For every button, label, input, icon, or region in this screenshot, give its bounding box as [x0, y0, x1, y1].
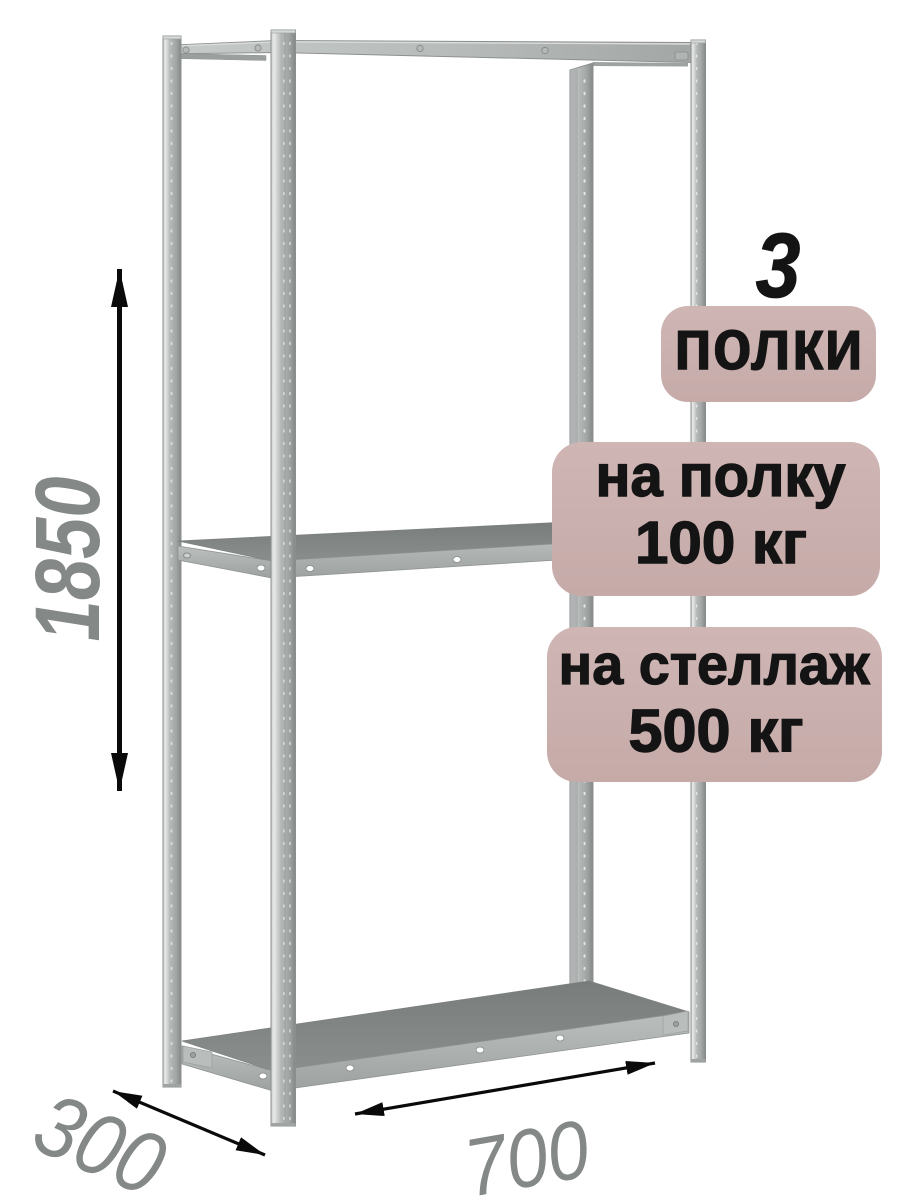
svg-text:на стеллаж: на стеллаж: [559, 633, 871, 697]
svg-text:500 кг: 500 кг: [629, 697, 804, 765]
svg-text:на полку: на полку: [596, 442, 846, 509]
svg-text:300: 300: [21, 1073, 179, 1200]
svg-text:3: 3: [756, 215, 801, 317]
svg-text:100 кг: 100 кг: [635, 509, 807, 576]
svg-text:700: 700: [458, 1103, 596, 1200]
svg-text:полки: полки: [674, 305, 864, 386]
svg-text:1850: 1850: [17, 477, 119, 642]
